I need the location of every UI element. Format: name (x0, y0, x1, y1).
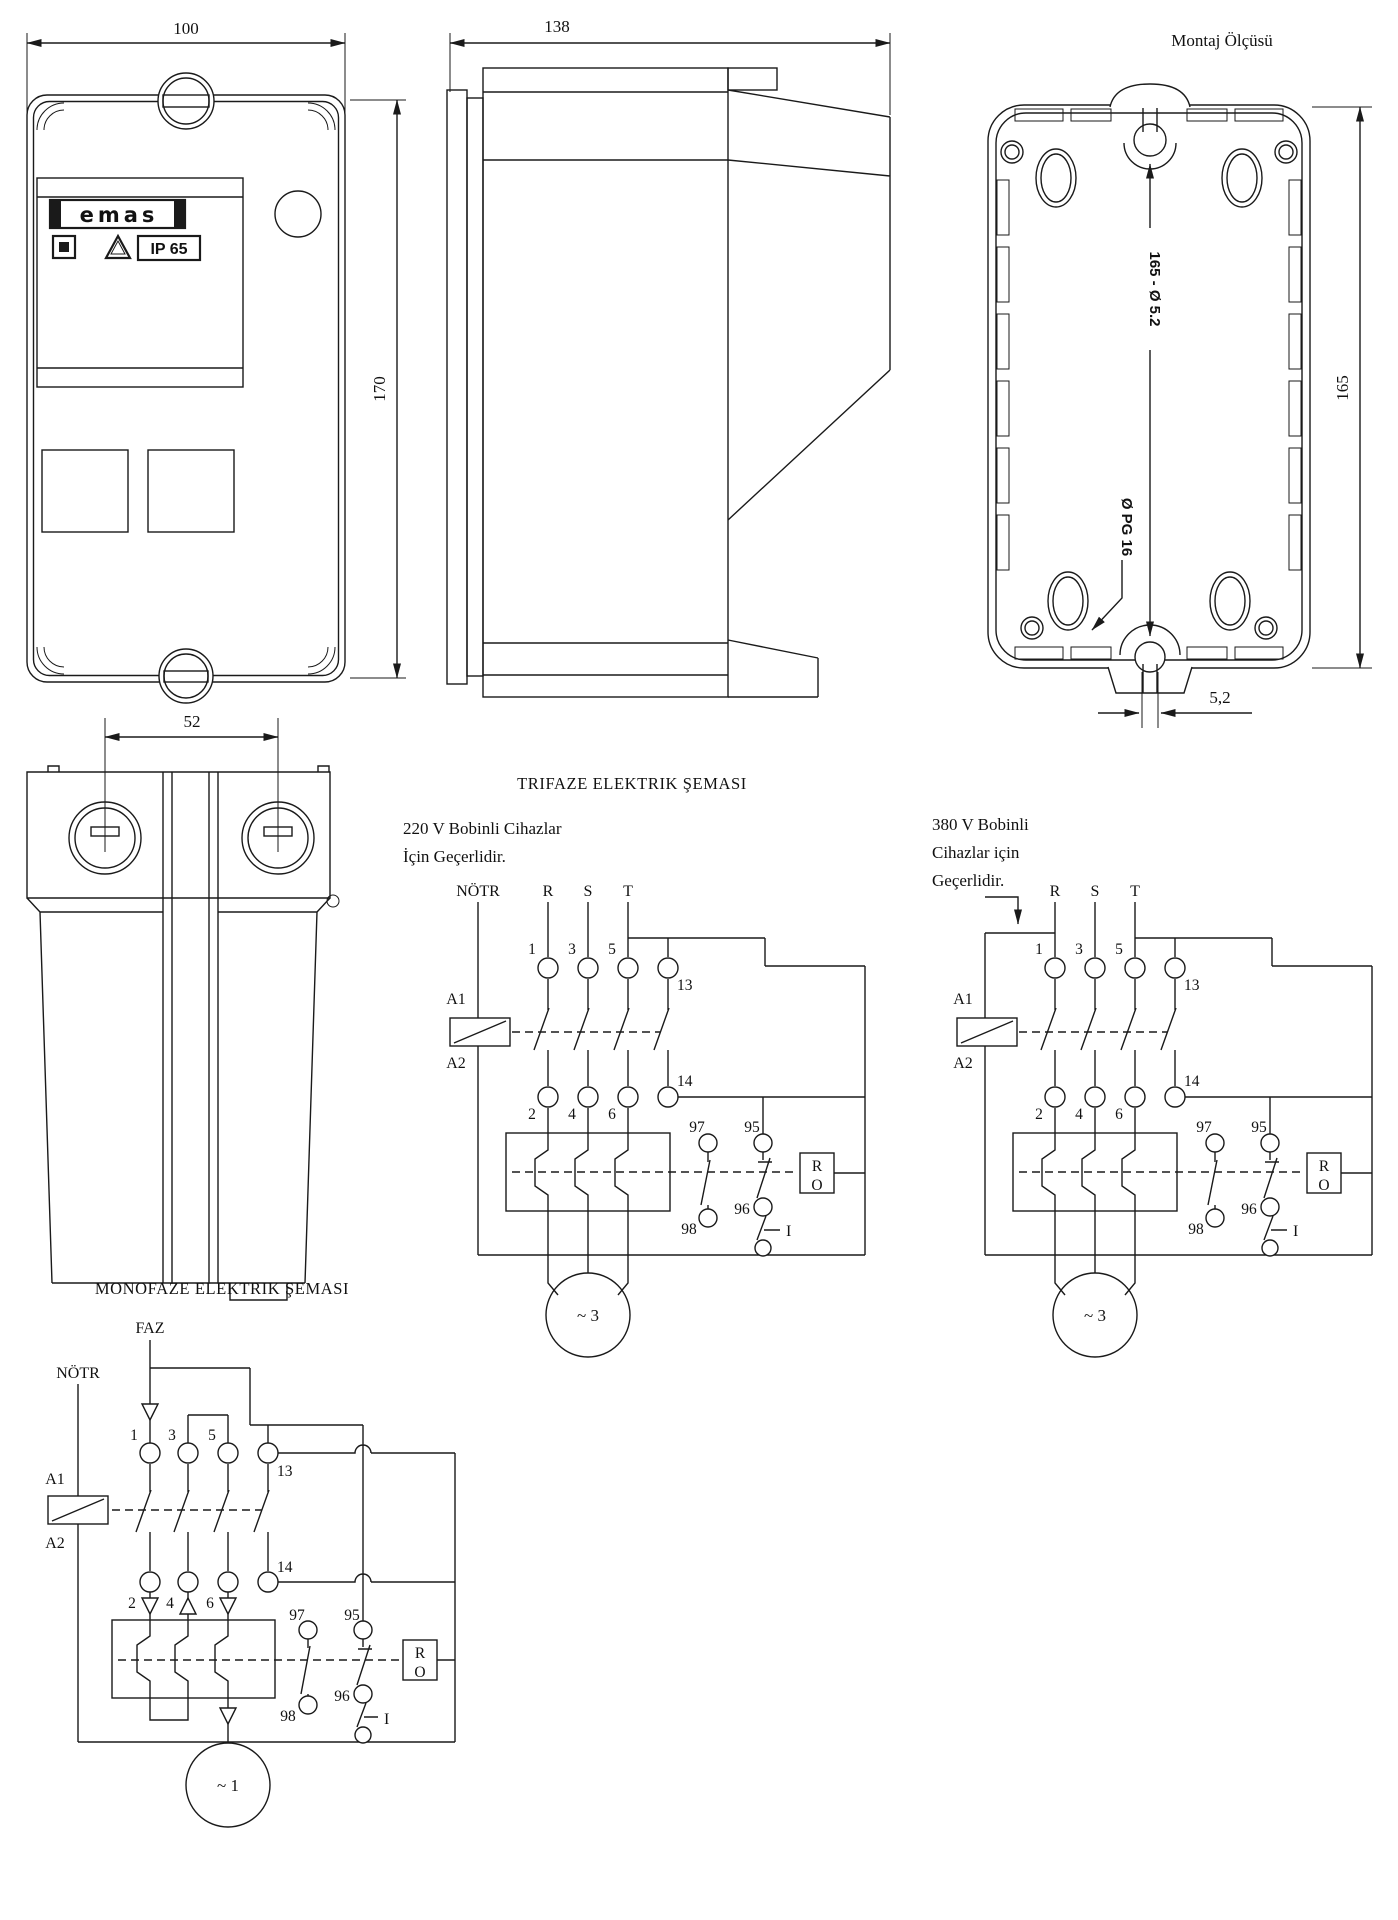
s220-reset-r: R (812, 1158, 823, 1175)
s220-t6: 6 (608, 1106, 616, 1123)
note-leader-380 (985, 897, 1018, 924)
top-keyhole (1134, 124, 1166, 156)
s380-nc95: 95 (1251, 1119, 1267, 1136)
s220-phase-s: S (584, 883, 593, 900)
smono-nc95: 95 (344, 1607, 360, 1624)
note-380-line2: Cihazlar için (932, 843, 1020, 862)
monofaze-title: MONOFAZE ELEKTRIK ŞEMASI (95, 1279, 349, 1298)
slot-oval (1036, 149, 1076, 207)
flow-arrow-4 (180, 1598, 196, 1614)
slot-oval (1222, 149, 1262, 207)
mounting-view (988, 84, 1372, 728)
s220-t5: 5 (608, 941, 616, 958)
dim-depth-ext (450, 33, 890, 115)
dim-front-height: 170 (370, 376, 389, 402)
s380-motor: ~ 3 (1084, 1306, 1106, 1325)
s220-t4: 4 (568, 1106, 576, 1123)
slot-oval-inner (1053, 577, 1083, 625)
smono-t5: 5 (208, 1427, 216, 1444)
smono-t6: 6 (206, 1595, 214, 1612)
smono-reset-r: R (415, 1645, 426, 1662)
button-left (42, 450, 128, 532)
front-corner-details (37, 103, 335, 674)
s220-no98: 98 (681, 1221, 697, 1238)
s220-nc96: 96 (734, 1201, 750, 1218)
contact-terminals-220 (699, 1134, 772, 1256)
dim-front-width: 100 (173, 19, 199, 38)
plate-outline-inner (996, 113, 1302, 660)
ip-rating-label: IP 65 (150, 241, 187, 258)
flow-arrow-faz (142, 1404, 158, 1420)
s380-aux14: 14 (1184, 1073, 1200, 1090)
s220-reset-o: O (811, 1177, 822, 1194)
s380-no97: 97 (1196, 1119, 1212, 1136)
warning-triangle-icon (106, 236, 130, 258)
s220-phase-t: T (623, 883, 633, 900)
flow-arrow-2 (142, 1598, 158, 1614)
dim-gland-spacing: 52 (184, 712, 201, 731)
hinge-nub (327, 895, 339, 907)
s380-aux13: 13 (1184, 977, 1200, 994)
lid-slab-inner (467, 98, 483, 676)
s380-t1: 1 (1035, 941, 1043, 958)
smono-a1: A1 (45, 1471, 65, 1488)
brand-logo-endblock-left (50, 200, 61, 228)
bottom-view (27, 718, 339, 1300)
smono-neutral-label: NÖTR (56, 1364, 100, 1382)
front-view (27, 33, 406, 703)
bottom-screw (159, 649, 213, 703)
lid-slab-outer (447, 90, 467, 684)
smono-faz-label: FAZ (135, 1320, 164, 1337)
schematic-trifaze-380 (957, 897, 1372, 1357)
schematic-monofaze (48, 1340, 455, 1827)
flow-arrow-motor (220, 1708, 236, 1724)
slot-oval-inner (1215, 577, 1245, 625)
contact-terminals-380 (1206, 1134, 1279, 1256)
s380-phase-t: T (1130, 883, 1140, 900)
mounting-gland-note: Ø PG 16 (1118, 498, 1135, 556)
top-mount-tab (1110, 84, 1190, 107)
square-icon-inner (59, 242, 69, 252)
bottom-body-outline (27, 766, 330, 1300)
terminals-mono (140, 1443, 278, 1592)
smono-reset-o: O (414, 1664, 425, 1681)
s220-no97: 97 (689, 1119, 705, 1136)
note-220-line1: 220 V Bobinli Cihazlar (403, 819, 562, 838)
plate-outline-outer (988, 105, 1310, 668)
s220-t3: 3 (568, 941, 576, 958)
slot-ovals (1036, 149, 1262, 630)
dim-gland-ext (105, 718, 278, 852)
bottom-keyhole (1135, 642, 1165, 672)
s220-phase-r: R (543, 883, 554, 900)
note-380-line3: Geçerlidir. (932, 871, 1004, 890)
technical-drawing: 100 170 138 Montaj Ölçüsü 165 - Ø 5.2 Ø … (0, 0, 1398, 1920)
center-channel (163, 772, 218, 1283)
note-220-line2: İçin Geçerlidir. (403, 847, 506, 866)
smono-no97: 97 (289, 1607, 305, 1624)
s380-reset-r: R (1319, 1158, 1330, 1175)
smono-t2: 2 (128, 1595, 136, 1612)
s220-a2: A2 (446, 1055, 466, 1072)
smono-start: I (384, 1711, 389, 1728)
perimeter-ribs (997, 109, 1301, 659)
schematic-trifaze-220 (450, 902, 865, 1357)
s220-motor: ~ 3 (577, 1306, 599, 1325)
trifaze-title: TRIFAZE ELEKTRIK ŞEMASI (517, 774, 747, 793)
s380-reset-o: O (1318, 1177, 1329, 1194)
s220-neutral-label: NÖTR (456, 882, 500, 900)
s380-t3: 3 (1075, 941, 1083, 958)
smono-t4: 4 (166, 1595, 174, 1612)
brand-logo-text: emas (80, 203, 159, 227)
smono-t3: 3 (168, 1427, 176, 1444)
dim-mounting-slot: 5,2 (1209, 688, 1230, 707)
gland-leader (1092, 560, 1122, 630)
side-top-tab (728, 68, 777, 90)
indicator-window (275, 191, 321, 237)
side-view (447, 33, 890, 697)
note-380-line1: 380 V Bobinli (932, 815, 1029, 834)
s380-t2: 2 (1035, 1106, 1043, 1123)
s380-phase-r: R (1050, 883, 1061, 900)
flow-arrow-6 (220, 1598, 236, 1614)
mounting-title: Montaj Ölçüsü (1171, 31, 1273, 50)
datasheet-page: 100 170 138 Montaj Ölçüsü 165 - Ø 5.2 Ø … (0, 0, 1398, 1920)
corner-holes (1001, 141, 1297, 639)
slot-oval-inner (1041, 154, 1071, 202)
s380-no98: 98 (1188, 1221, 1204, 1238)
brand-logo-endblock-right (174, 200, 185, 228)
s220-nc95: 95 (744, 1119, 760, 1136)
front-outline-inner (34, 102, 339, 676)
s380-nc96: 96 (1241, 1201, 1257, 1218)
s380-start: I (1293, 1223, 1298, 1240)
s220-aux14: 14 (677, 1073, 693, 1090)
smono-a2: A2 (45, 1535, 65, 1552)
dim-side-depth: 138 (544, 17, 570, 36)
side-detail-lines (483, 90, 890, 697)
slot-oval (1048, 572, 1088, 630)
s380-phase-s: S (1091, 883, 1100, 900)
top-screw (158, 73, 214, 129)
s380-a2: A2 (953, 1055, 973, 1072)
s380-t6: 6 (1115, 1106, 1123, 1123)
side-body (483, 68, 728, 697)
smono-no98: 98 (280, 1708, 296, 1725)
smono-motor: ~ 1 (217, 1776, 239, 1795)
button-right (148, 450, 234, 532)
contact-terminals-mono (299, 1621, 372, 1743)
s380-t5: 5 (1115, 941, 1123, 958)
smono-aux14: 14 (277, 1559, 293, 1576)
smono-nc96: 96 (334, 1688, 350, 1705)
smono-aux13: 13 (277, 1463, 293, 1480)
s220-t1: 1 (528, 941, 536, 958)
slot-oval-inner (1227, 154, 1257, 202)
s380-a1: A1 (953, 991, 973, 1008)
s220-a1: A1 (446, 991, 466, 1008)
smono-t1: 1 (130, 1427, 138, 1444)
s380-t4: 4 (1075, 1106, 1083, 1123)
s220-t2: 2 (528, 1106, 536, 1123)
dim-mounting-height: 165 (1333, 375, 1352, 401)
s220-aux13: 13 (677, 977, 693, 994)
front-outline-outer (27, 95, 345, 682)
s220-start: I (786, 1223, 791, 1240)
mounting-hole-note: 165 - Ø 5.2 (1146, 251, 1163, 326)
slot-oval (1210, 572, 1250, 630)
